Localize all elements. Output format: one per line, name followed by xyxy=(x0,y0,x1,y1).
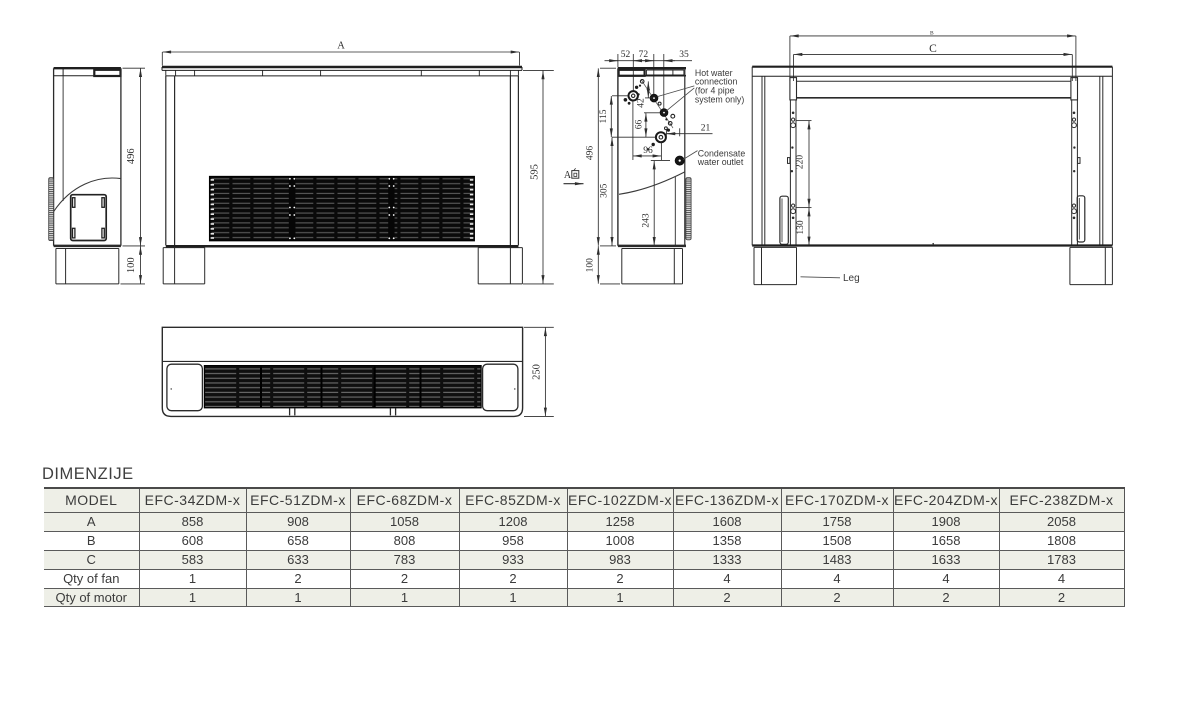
svg-text:52: 52 xyxy=(621,50,631,60)
svg-text:42: 42 xyxy=(637,98,647,108)
svg-text:250: 250 xyxy=(531,364,542,380)
svg-text:243: 243 xyxy=(641,213,651,228)
svg-text:35: 35 xyxy=(679,50,689,60)
svg-text:A: A xyxy=(564,170,572,181)
svg-text:220: 220 xyxy=(796,155,806,170)
svg-text:595: 595 xyxy=(529,164,540,180)
svg-text:100: 100 xyxy=(126,257,137,273)
svg-text:A: A xyxy=(337,41,345,52)
svg-text:96: 96 xyxy=(643,146,653,156)
svg-text:496: 496 xyxy=(126,148,137,164)
svg-text:C: C xyxy=(929,43,937,55)
svg-text:21: 21 xyxy=(701,124,711,134)
svg-text:130: 130 xyxy=(796,220,806,235)
svg-text:66: 66 xyxy=(634,120,644,130)
svg-text:305: 305 xyxy=(600,183,610,198)
svg-text:72: 72 xyxy=(639,50,649,60)
svg-text:Leg: Leg xyxy=(843,273,860,284)
svg-text:B: B xyxy=(930,31,934,37)
svg-text:system only): system only) xyxy=(695,94,744,104)
svg-text:100: 100 xyxy=(586,258,596,273)
svg-text:115: 115 xyxy=(599,109,609,123)
svg-text:water outlet: water outlet xyxy=(697,157,744,167)
svg-text:496: 496 xyxy=(586,146,596,161)
